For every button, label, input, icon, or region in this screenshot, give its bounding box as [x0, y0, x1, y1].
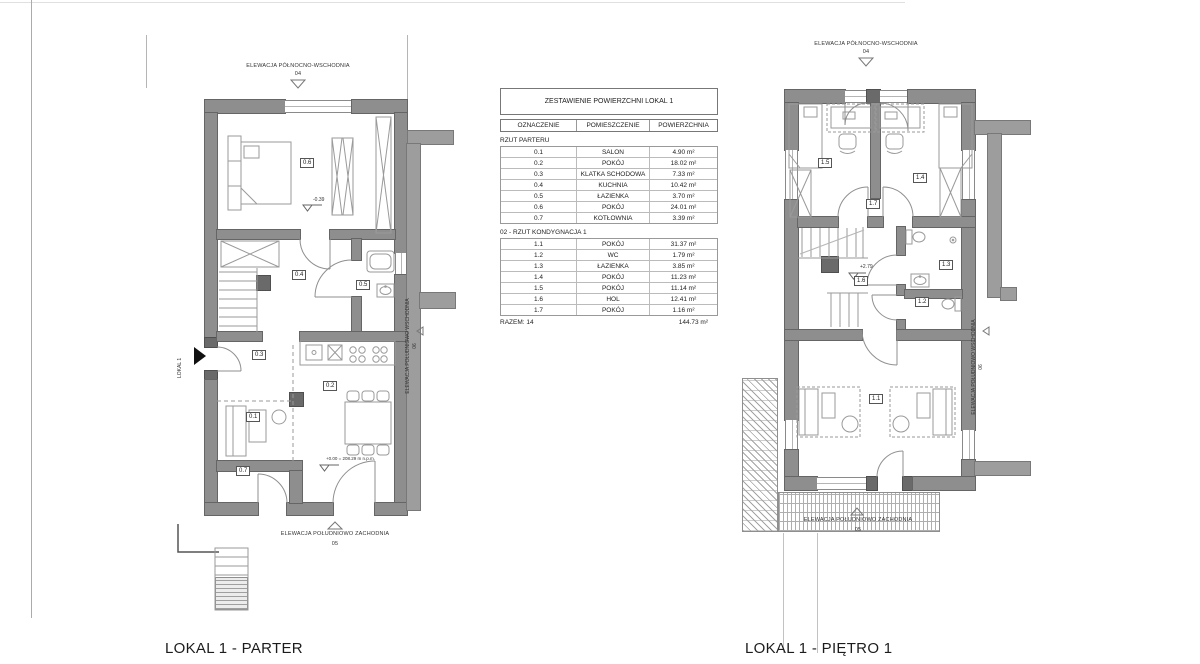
window — [285, 100, 352, 113]
wall-segment — [897, 285, 905, 295]
unit-entrance-label: LOKAL 1 — [177, 358, 184, 378]
site-line — [817, 533, 818, 653]
site-line-top — [0, 2, 905, 3]
wall-segment — [352, 239, 361, 260]
wall-segment — [868, 217, 883, 227]
window — [785, 420, 798, 450]
wall-segment — [290, 471, 302, 503]
room-label-1-5: 1.5 — [818, 158, 832, 168]
site-line — [407, 35, 408, 99]
wall-segment — [785, 90, 845, 103]
elevation-name: ELEWACJA POŁUDNIOWO WSCHODNIA — [405, 286, 412, 406]
cell: 0.6 — [501, 201, 577, 212]
roof-hatch-left — [742, 378, 778, 532]
wall-segment — [217, 230, 300, 239]
column-header: OZNACZENIE — [501, 120, 577, 131]
room-label-0-5: 0.5 — [356, 280, 370, 290]
cell: SALON — [577, 147, 650, 157]
wall-segment — [785, 330, 862, 340]
table-total-row: RAZEM: 14 144.73 m² — [500, 319, 718, 326]
room-label-1-3: 1.3 — [939, 260, 953, 270]
cell: 0.2 — [501, 157, 577, 168]
cell: 11.14 m² — [650, 282, 717, 293]
site-line — [146, 35, 147, 88]
elevation-number-sw: 05 — [855, 527, 862, 533]
cell: POKÓJ — [577, 157, 650, 168]
elevation-label-sw: ELEWACJA POŁUDNIOWO ZACHODNIA — [281, 531, 390, 537]
site-line — [783, 533, 784, 653]
door-jamb — [205, 371, 217, 380]
bathtub — [367, 251, 394, 272]
window — [962, 430, 975, 460]
chimney-pier — [257, 276, 270, 290]
table-section-pietro: 1.1POKÓJ31.37 m² 1.2WC1.79 m² 1.3ŁAZIENK… — [500, 238, 718, 316]
balcony-door — [845, 90, 867, 103]
cell: WC — [577, 249, 650, 260]
canopy-line — [178, 524, 219, 552]
room-label-0-4: 0.4 — [292, 270, 306, 280]
table-section-label: 02 - RZUT KONDYGNACJA 1 — [500, 229, 718, 236]
wall-segment — [352, 100, 407, 113]
total-label: RAZEM: 14 — [500, 319, 534, 326]
wall-segment — [897, 227, 905, 255]
cell: 24.01 m² — [650, 201, 717, 212]
sink — [911, 274, 929, 287]
caption-parter: LOKAL 1 - PARTER — [165, 640, 303, 657]
wall-segment — [217, 461, 302, 471]
wall-segment — [897, 330, 975, 340]
cell: ŁAZIENKA — [577, 260, 650, 271]
room-label-1-1: 1.1 — [869, 394, 883, 404]
cell: KOTŁOWNIA — [577, 212, 650, 223]
neighbour-wall — [408, 131, 453, 144]
window — [817, 477, 867, 490]
table-section-parter: 0.1SALON4.90 m² 0.2POKÓJ18.02 m² 0.3KLAT… — [500, 146, 718, 224]
cell: 3.85 m² — [650, 260, 717, 271]
elevation-label-se: ELEWACJA POŁUDNIOWO WSCHODNIA 06 — [405, 286, 419, 406]
area-table: ZESTAWIENIE POWIERZCHNI LOKAL 1 OZNACZEN… — [500, 88, 718, 326]
cell: 10.42 m² — [650, 179, 717, 190]
room-label-1-2: 1.2 — [915, 297, 929, 307]
wall-segment — [205, 100, 285, 113]
room-label-0-7: 0.7 — [236, 466, 250, 476]
elevation-label-sw: ELEWACJA POŁUDNIOWO ZACHODNIA — [804, 517, 913, 523]
cell: POKÓJ — [577, 271, 650, 282]
wall-segment — [905, 290, 962, 298]
cell: 1.16 m² — [650, 304, 717, 315]
bed — [789, 104, 972, 168]
wall-pier — [867, 90, 880, 103]
cell: 0.3 — [501, 168, 577, 179]
sink — [377, 284, 394, 297]
bed — [228, 136, 291, 210]
level-text-hall: +2.79 — [860, 264, 873, 270]
wall-segment — [300, 332, 407, 341]
site-boundary-line — [31, 0, 32, 618]
cell: 3.70 m² — [650, 190, 717, 201]
wall-segment — [395, 113, 407, 253]
cell: 0.7 — [501, 212, 577, 223]
caption-pietro: LOKAL 1 - PIĘTRO 1 — [745, 640, 892, 657]
window — [962, 150, 975, 200]
elevation-number-ne: 04 — [863, 49, 870, 55]
table-header-row: OZNACZENIE POMIESZCZENIE POWIERZCHNIA — [500, 119, 718, 132]
wall-segment — [908, 90, 975, 103]
wall-segment — [330, 230, 395, 239]
elevation-label-se: ELEWACJA POŁUDNIOWO WSCHODNIA 06 — [971, 312, 985, 422]
room-label-0-1: 0.1 — [246, 412, 260, 422]
wall-segment — [962, 460, 975, 477]
cell: POKÓJ — [577, 304, 650, 315]
cell: 1.7 — [501, 304, 577, 315]
cell: 31.37 m² — [650, 239, 717, 249]
level-text-entry: +0.00 = 208.29 m n.p.m. — [326, 456, 375, 461]
neighbour-wall — [420, 293, 455, 308]
wall-segment — [785, 477, 817, 490]
room-label-1-4: 1.4 — [913, 173, 927, 183]
wall-segment — [785, 103, 798, 150]
room-label-1-6: 1.6 — [854, 276, 868, 286]
elevation-name: ELEWACJA POŁUDNIOWO WSCHODNIA — [971, 312, 978, 422]
wall-segment — [871, 103, 880, 198]
level-text-bedroom: -0.39 — [313, 197, 324, 203]
cell: 0.1 — [501, 147, 577, 157]
cell: KLATKA SCHODOWA — [577, 168, 650, 179]
elevation-number: 06 — [412, 286, 419, 406]
cell: 18.02 m² — [650, 157, 717, 168]
wardrobe — [221, 117, 391, 267]
neighbour-wall — [975, 462, 1030, 475]
chimney-pier — [822, 257, 838, 272]
kitchen-counter — [300, 341, 395, 365]
cell: ŁAZIENKA — [577, 190, 650, 201]
elevation-number-sw: 05 — [332, 541, 339, 547]
room-label-0-2: 0.2 — [323, 381, 337, 391]
elevation-number-ne: 04 — [295, 71, 302, 77]
balcony-door — [880, 90, 908, 103]
wall-pier — [290, 393, 303, 406]
cell: 1.1 — [501, 239, 577, 249]
cell: POKÓJ — [577, 239, 650, 249]
cell: POKÓJ — [577, 201, 650, 212]
window — [785, 150, 798, 200]
cell: 11.23 m² — [650, 271, 717, 282]
wall-segment — [205, 380, 217, 503]
cell: 3.39 m² — [650, 212, 717, 223]
stairs — [219, 268, 257, 332]
cell: 7.33 m² — [650, 168, 717, 179]
wall-segment — [913, 477, 975, 490]
neighbour-wall — [1001, 288, 1016, 300]
table-title: ZESTAWIENIE POWIERZCHNI LOKAL 1 — [500, 88, 718, 115]
column-header: POWIERZCHNIA — [650, 120, 717, 131]
neighbour-wall — [988, 134, 1001, 297]
cell: HOL — [577, 293, 650, 304]
wall-segment — [287, 503, 333, 515]
cell: 1.79 m² — [650, 249, 717, 260]
wall-segment — [785, 450, 798, 477]
elevation-number: 06 — [978, 312, 985, 422]
cell: 1.6 — [501, 293, 577, 304]
wall-segment — [205, 113, 217, 338]
cell: 12.41 m² — [650, 293, 717, 304]
total-value: 144.73 m² — [679, 319, 708, 326]
table-section-label: RZUT PARTERU — [500, 137, 718, 144]
room-label-0-6: 0.6 — [300, 158, 314, 168]
roof-hatch-bottom — [778, 492, 940, 532]
external-stairs-hatch — [215, 577, 248, 610]
cell: 1.3 — [501, 260, 577, 271]
elevation-label-ne: ELEWACJA PÓŁNOCNO-WSCHODNIA — [246, 63, 350, 69]
cell: KUCHNIA — [577, 179, 650, 190]
wall-segment — [205, 503, 258, 515]
cell: 1.4 — [501, 271, 577, 282]
cell: POKÓJ — [577, 282, 650, 293]
cell: 0.4 — [501, 179, 577, 190]
wall-segment — [962, 103, 975, 150]
room-label-1-7: 1.7 — [866, 199, 880, 209]
drawing-sheet: 0.6 0.4 0.5 0.3 0.2 0.1 0.7 1.5 1.4 1.7 … — [0, 0, 1200, 664]
cell: 1.2 — [501, 249, 577, 260]
shower-head-icon — [950, 237, 956, 243]
cell: 0.5 — [501, 190, 577, 201]
wall-segment — [375, 503, 407, 515]
elevation-label-ne: ELEWACJA PÓŁNOCNO-WSCHODNIA — [814, 41, 918, 47]
column-header: POMIESZCZENIE — [577, 120, 650, 131]
dining-table — [345, 391, 391, 455]
door-jamb — [903, 477, 913, 490]
wall-segment — [798, 217, 838, 227]
door-jamb — [205, 338, 217, 347]
wall-segment — [913, 217, 975, 227]
wall-segment — [217, 332, 262, 341]
zone-dashed-line — [217, 345, 293, 461]
cell: 1.5 — [501, 282, 577, 293]
room-label-0-3: 0.3 — [252, 350, 266, 360]
window — [395, 253, 407, 275]
wall-segment — [785, 200, 798, 420]
door-jamb — [867, 477, 877, 490]
neighbour-wall — [975, 121, 1030, 134]
cell: 4.90 m² — [650, 147, 717, 157]
wall-segment — [352, 297, 361, 332]
entrance-arrow-icon — [194, 347, 206, 365]
